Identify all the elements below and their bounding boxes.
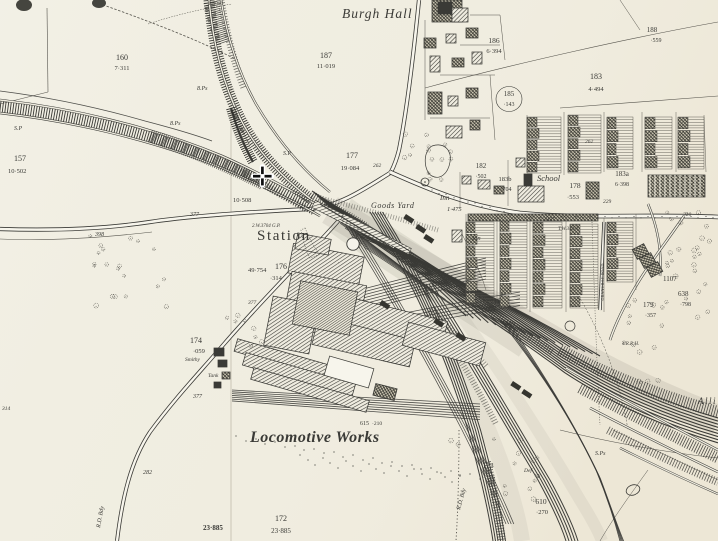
svg-text:174: 174 bbox=[190, 336, 202, 345]
svg-text:S.Ps: S.Ps bbox=[595, 451, 606, 457]
svg-text:Inn: Inn bbox=[439, 194, 450, 202]
svg-text:6·394: 6·394 bbox=[486, 48, 502, 55]
svg-text:10·502: 10·502 bbox=[8, 168, 26, 175]
svg-text:Alli: Alli bbox=[697, 396, 717, 406]
svg-text:185: 185 bbox=[504, 90, 515, 98]
svg-text:10·508: 10·508 bbox=[233, 197, 251, 204]
svg-text:187: 187 bbox=[320, 51, 332, 60]
svg-text:179: 179 bbox=[643, 301, 654, 309]
svg-text:49·754: 49·754 bbox=[248, 267, 267, 274]
svg-text:610: 610 bbox=[535, 497, 547, 506]
svg-text:2.W.3704 G.P.: 2.W.3704 G.P. bbox=[252, 224, 280, 229]
svg-text:262: 262 bbox=[373, 163, 382, 169]
svg-text:243: 243 bbox=[544, 216, 553, 223]
svg-text:8.Ps: 8.Ps bbox=[170, 121, 181, 127]
svg-text:177: 177 bbox=[346, 151, 358, 160]
svg-text:Burgh Hall: Burgh Hall bbox=[342, 6, 413, 21]
svg-text:188: 188 bbox=[647, 26, 658, 34]
svg-text:·314: ·314 bbox=[270, 275, 283, 282]
svg-text:·553: ·553 bbox=[567, 194, 579, 201]
svg-text:·502: ·502 bbox=[476, 174, 487, 180]
svg-text:398: 398 bbox=[94, 232, 104, 238]
svg-text:377: 377 bbox=[247, 300, 257, 306]
svg-text:182: 182 bbox=[476, 162, 487, 170]
svg-text:23·885: 23·885 bbox=[271, 527, 291, 535]
svg-text:S.P: S.P bbox=[14, 126, 23, 132]
svg-text:4·494: 4·494 bbox=[588, 86, 604, 93]
svg-text:Locomotive Works: Locomotive Works bbox=[249, 429, 380, 446]
svg-text:Inn: Inn bbox=[471, 235, 481, 242]
svg-text:282: 282 bbox=[143, 470, 152, 476]
svg-text:·395: ·395 bbox=[483, 474, 495, 481]
svg-text:178: 178 bbox=[569, 181, 581, 190]
svg-text:T.W.343-T: T.W.343-T bbox=[558, 227, 580, 232]
svg-text:·210: ·210 bbox=[372, 421, 382, 427]
svg-text:6·398: 6·398 bbox=[615, 182, 629, 188]
svg-text:229: 229 bbox=[603, 199, 612, 205]
svg-text:Goods Yard: Goods Yard bbox=[371, 201, 415, 210]
svg-text:173: 173 bbox=[482, 461, 494, 470]
svg-text:615: 615 bbox=[360, 421, 369, 427]
svg-text:7·311: 7·311 bbox=[115, 65, 130, 72]
svg-text:·357: ·357 bbox=[645, 313, 656, 319]
svg-text:Smithy: Smithy bbox=[185, 357, 201, 363]
svg-text:1107: 1107 bbox=[663, 275, 677, 283]
svg-text:1·475: 1·475 bbox=[447, 206, 462, 213]
svg-text:160: 160 bbox=[116, 53, 128, 62]
svg-text:·143: ·143 bbox=[504, 102, 515, 108]
svg-text:·798: ·798 bbox=[680, 302, 691, 308]
svg-text:8.Ps: 8.Ps bbox=[197, 86, 208, 92]
svg-text:·559: ·559 bbox=[651, 38, 662, 44]
svg-text:157: 157 bbox=[14, 154, 26, 163]
svg-text:Tank: Tank bbox=[208, 373, 219, 379]
svg-text:S.P: S.P bbox=[283, 151, 292, 157]
svg-text:262: 262 bbox=[585, 139, 594, 145]
svg-text:19·084: 19·084 bbox=[341, 165, 360, 172]
svg-text:·059: ·059 bbox=[193, 348, 205, 355]
svg-text:·270: ·270 bbox=[536, 509, 548, 516]
svg-text:638: 638 bbox=[678, 290, 689, 298]
svg-text:GRANVILLE ROAD: GRANVILLE ROAD bbox=[600, 264, 605, 301]
svg-text:377: 377 bbox=[189, 212, 200, 218]
svg-text:School: School bbox=[537, 173, 561, 183]
svg-text:23·885: 23·885 bbox=[203, 524, 223, 532]
svg-text:183b: 183b bbox=[499, 176, 512, 183]
svg-text:4.R.R.H.: 4.R.R.H. bbox=[622, 342, 639, 347]
svg-text:11·019: 11·019 bbox=[208, 1, 224, 7]
svg-text:377: 377 bbox=[192, 394, 203, 400]
svg-text:Def: Def bbox=[523, 467, 533, 474]
svg-text:314: 314 bbox=[1, 405, 11, 412]
svg-text:183: 183 bbox=[590, 72, 602, 81]
svg-text:11·019: 11·019 bbox=[317, 63, 335, 70]
svg-text:183a: 183a bbox=[615, 170, 630, 178]
svg-text:·704: ·704 bbox=[501, 187, 512, 193]
svg-text:Station: Station bbox=[257, 228, 311, 244]
svg-text:186: 186 bbox=[488, 36, 500, 45]
svg-text:176: 176 bbox=[275, 262, 287, 271]
svg-text:S.Ps: S.Ps bbox=[505, 321, 516, 327]
svg-text:172: 172 bbox=[275, 514, 287, 523]
svg-text:310: 310 bbox=[682, 212, 692, 218]
